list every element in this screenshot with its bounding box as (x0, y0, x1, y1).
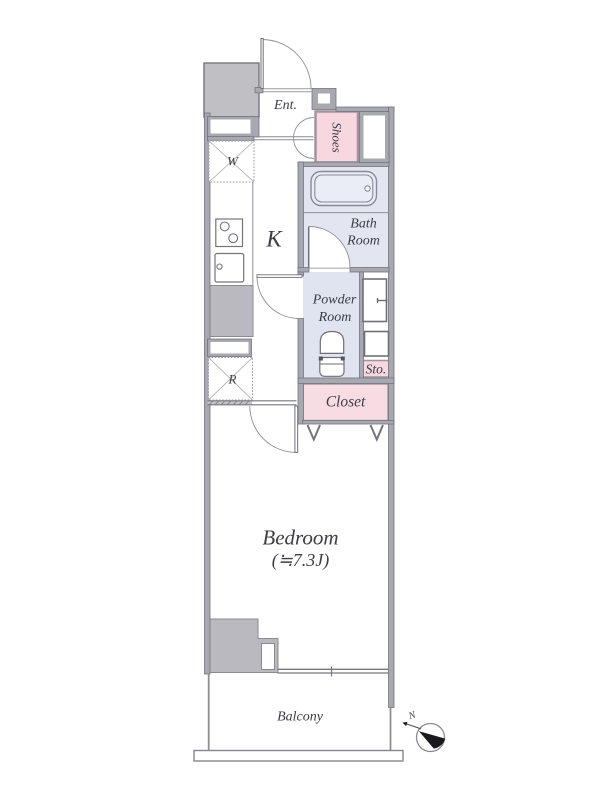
svg-text:W: W (227, 154, 239, 169)
svg-text:(≒7.3J): (≒7.3J) (272, 550, 330, 571)
svg-text:Shoes: Shoes (329, 122, 344, 152)
svg-text:Bath: Bath (350, 217, 376, 232)
svg-text:Powder: Powder (312, 293, 357, 308)
svg-text:Sto.: Sto. (366, 362, 387, 377)
svg-text:K: K (265, 227, 283, 252)
svg-text:Ent.: Ent. (273, 98, 297, 113)
svg-text:R: R (228, 372, 237, 387)
svg-text:N: N (406, 709, 418, 722)
svg-text:Closet: Closet (326, 394, 366, 411)
svg-text:Room: Room (318, 310, 352, 325)
svg-text:Bedroom: Bedroom (262, 526, 338, 550)
svg-text:Room: Room (346, 234, 380, 249)
svg-text:Balcony: Balcony (277, 710, 324, 725)
